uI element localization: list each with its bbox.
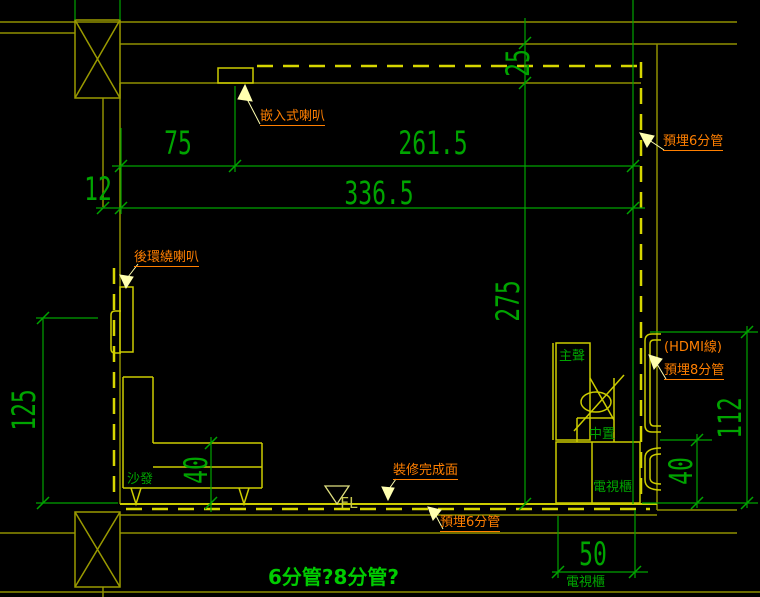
dim-336-5: 336.5 [344, 174, 413, 212]
drawing-linework [0, 0, 760, 597]
label-finish-surface: 裝修完成面 [393, 459, 458, 480]
dim-40-right: 40 [662, 457, 700, 485]
label-tv-cabinet-bottom: 電視櫃 [566, 571, 605, 590]
label-tv-cabinet: 電視櫃 [593, 476, 632, 495]
dim-112: 112 [711, 397, 749, 439]
column-top-left [75, 20, 120, 98]
label-main-speaker: 主聲 [559, 345, 585, 364]
label-conduit6-bottom: 預埋6分管 [440, 511, 500, 532]
label-rear-speaker: 後環繞喇叭 [134, 246, 199, 267]
dim-40-sofa: 40 [177, 456, 215, 484]
label-ceiling-speaker: 嵌入式喇叭 [260, 105, 325, 126]
label-conduit6-top: 預埋6分管 [663, 130, 723, 151]
dim-50: 50 [579, 535, 607, 573]
dim-275: 275 [489, 280, 527, 322]
dim-261-5: 261.5 [398, 124, 467, 162]
dim-25: 25 [499, 49, 537, 77]
dim-75: 75 [164, 124, 192, 162]
label-hdmi-line: (HDMI線) [664, 336, 722, 355]
dimension-ticks [37, 37, 753, 578]
dim-12: 12 [84, 170, 112, 208]
label-sofa: 沙發 [127, 468, 153, 487]
dim-125: 125 [5, 389, 43, 431]
label-center-speaker: 中置 [589, 423, 615, 442]
column-bottom-left [75, 512, 120, 587]
cad-drawing-canvas: 75 261.5 336.5 12 25 275 125 40 40 112 5… [0, 0, 760, 597]
ceiling-speaker-box [218, 68, 253, 83]
dimension-lines [36, 0, 758, 578]
label-question: 6分管?8分管? [268, 561, 399, 590]
label-floor-level: FL [340, 494, 358, 512]
label-conduit8: 預埋8分管 [664, 359, 724, 380]
